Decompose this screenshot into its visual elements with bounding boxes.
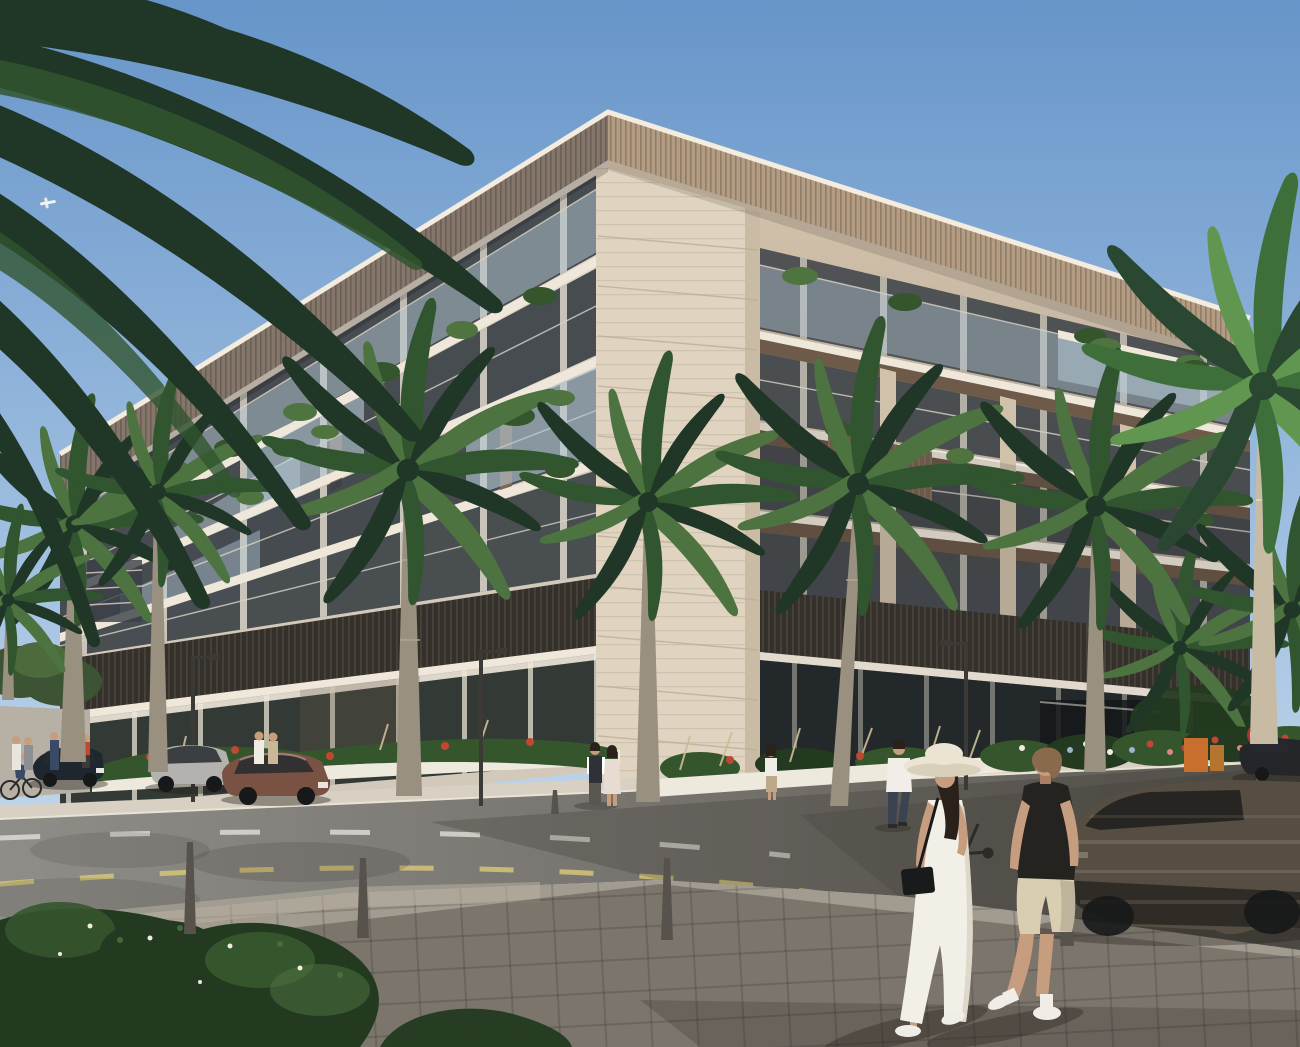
scene-canvas [0, 0, 1300, 1047]
pedestrian [12, 736, 21, 770]
architectural-render-image [0, 0, 1300, 1047]
pedestrian [24, 737, 33, 770]
sneaker [1033, 1006, 1061, 1020]
pedestrian-white-top [765, 744, 777, 800]
sneaker [895, 1025, 921, 1037]
